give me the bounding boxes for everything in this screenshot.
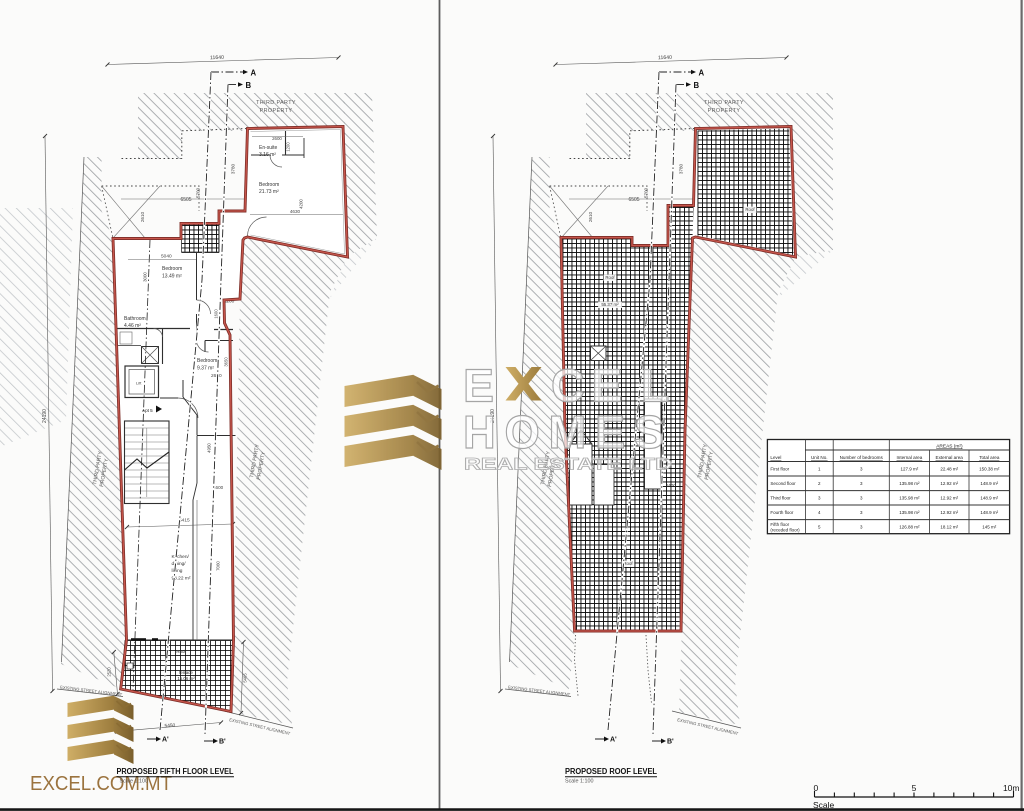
svg-text:4950: 4950 [207, 443, 212, 453]
svg-text:Fifth floor: Fifth floor [770, 522, 789, 527]
svg-text:5: 5 [912, 783, 917, 793]
svg-text:L: L [641, 360, 678, 412]
svg-text:Unit No.: Unit No. [811, 455, 828, 460]
svg-text:5450: 5450 [164, 723, 175, 730]
svg-text:12.92 m²: 12.92 m² [940, 496, 958, 501]
svg-text:3780: 3780 [231, 163, 236, 174]
svg-text:E: E [463, 360, 503, 412]
svg-text:Bathroom: Bathroom [124, 316, 146, 322]
svg-text:External area: External area [936, 455, 964, 460]
svg-text:PROPERTY: PROPERTY [708, 108, 741, 114]
svg-text:3.16 m²: 3.16 m² [259, 152, 276, 158]
svg-text:12.92 m²: 12.92 m² [940, 510, 958, 515]
svg-text:B': B' [219, 739, 226, 746]
svg-text:THIRD PARTY: THIRD PARTY [256, 100, 296, 106]
svg-text:dining/: dining/ [172, 561, 187, 567]
svg-text:3000: 3000 [143, 272, 148, 282]
svg-text:5700: 5700 [644, 187, 649, 198]
svg-text:HOMES: HOMES [463, 406, 673, 458]
svg-text:55.37 m²: 55.37 m² [601, 302, 619, 307]
svg-text:Internal area: Internal area [897, 455, 923, 460]
svg-text:4200: 4200 [299, 199, 304, 209]
svg-text:0: 0 [814, 783, 819, 793]
svg-text:Scale 1:100: Scale 1:100 [120, 779, 148, 785]
svg-text:Level: Level [770, 455, 781, 460]
svg-text:22.48 m²: 22.48 m² [940, 466, 958, 471]
svg-text:5700: 5700 [196, 187, 201, 198]
svg-text:living: living [172, 568, 183, 574]
svg-text:12.92 m²: 12.92 m² [940, 481, 958, 486]
svg-text:24190: 24190 [42, 409, 48, 423]
svg-text:Bedroom: Bedroom [259, 182, 279, 188]
svg-text:10m: 10m [1003, 783, 1020, 793]
svg-text:135.98 m²: 135.98 m² [899, 496, 920, 501]
svg-text:Scale: Scale [813, 800, 835, 810]
svg-text:11640: 11640 [658, 55, 672, 61]
svg-text:A': A' [162, 737, 169, 744]
svg-text:C: C [551, 360, 594, 412]
svg-text:E: E [592, 360, 632, 412]
svg-text:21.73 m²: 21.73 m² [259, 189, 279, 195]
svg-text:Bedroom: Bedroom [197, 358, 217, 364]
svg-text:EXISTING STREET ALIGNMENT: EXISTING STREET ALIGNMENT [60, 685, 123, 698]
svg-text:3650: 3650 [224, 357, 229, 367]
svg-text:Roof: Roof [745, 207, 755, 212]
svg-text:PROPOSED FIFTH FLOOR LEVEL: PROPOSED FIFTH FLOOR LEVEL [117, 766, 234, 776]
svg-text:1600: 1600 [214, 309, 219, 319]
svg-text:126.88 m²: 126.88 m² [899, 524, 920, 529]
svg-text:PROPOSED ROOF LEVEL: PROPOSED ROOF LEVEL [565, 766, 657, 776]
svg-text:EXISTING STREET ALIGNMENT: EXISTING STREET ALIGNMENT [508, 685, 571, 698]
svg-text:2610: 2610 [588, 211, 593, 222]
svg-text:Number of bedrooms: Number of bedrooms [840, 455, 884, 460]
svg-text:6505: 6505 [628, 197, 639, 203]
svg-text:Fourth floor: Fourth floor [770, 510, 794, 515]
svg-text:1600: 1600 [666, 483, 676, 488]
svg-text:150.38 m²: 150.38 m² [979, 466, 1000, 471]
svg-text:REAL ESTATE LTD: REAL ESTATE LTD [464, 455, 672, 474]
svg-text:First floor: First floor [770, 466, 789, 471]
svg-text:A': A' [610, 737, 617, 744]
svg-text:Lift: Lift [136, 381, 142, 386]
svg-text:Total area: Total area [979, 455, 1000, 460]
svg-text:145 m²: 145 m² [982, 524, 997, 529]
svg-text:(receded floor): (receded floor) [770, 527, 800, 532]
svg-text:B': B' [667, 739, 674, 746]
svg-text:135.98 m²: 135.98 m² [899, 510, 920, 515]
svg-text:3780: 3780 [679, 163, 684, 174]
svg-text:A: A [699, 69, 705, 78]
svg-text:Scale 1:100: Scale 1:100 [565, 779, 593, 785]
svg-text:148.9 m²: 148.9 m² [980, 496, 998, 501]
svg-text:135.98 m²: 135.98 m² [899, 481, 920, 486]
svg-text:THIRD PARTY: THIRD PARTY [704, 100, 744, 106]
svg-text:Second floor: Second floor [770, 481, 796, 486]
svg-text:2520: 2520 [107, 667, 112, 677]
svg-text:15.06 m²: 15.06 m² [177, 676, 195, 681]
svg-text:Roof: Roof [605, 275, 615, 280]
svg-text:Roof: Roof [623, 561, 633, 566]
svg-text:Third floor: Third floor [770, 496, 791, 501]
svg-text:2610: 2610 [140, 211, 145, 222]
svg-text:148.9 m²: 148.9 m² [980, 510, 998, 515]
svg-text:11640: 11640 [210, 55, 224, 61]
svg-text:148.9 m²: 148.9 m² [980, 481, 998, 486]
svg-text:13.49 m²: 13.49 m² [162, 274, 182, 280]
svg-text:127.9 m²: 127.9 m² [901, 466, 919, 471]
svg-text:18.12 m²: 18.12 m² [940, 524, 958, 529]
svg-text:A: A [251, 69, 257, 78]
svg-text:AREAS (m²): AREAS (m²) [936, 444, 963, 450]
svg-text:4.46 m²: 4.46 m² [124, 323, 141, 329]
svg-text:PROPERTY: PROPERTY [260, 108, 293, 114]
svg-text:Roof: Roof [176, 649, 186, 654]
svg-text:Kitchen/: Kitchen/ [172, 554, 190, 560]
svg-text:terrace: terrace [179, 670, 193, 675]
svg-text:5465: 5465 [243, 673, 248, 683]
svg-text:9.37 m²: 9.37 m² [197, 366, 214, 372]
svg-text:5040: 5040 [161, 254, 172, 260]
svg-text:7060: 7060 [216, 561, 221, 571]
svg-text:1200: 1200 [286, 142, 291, 152]
svg-text:B: B [694, 81, 700, 90]
svg-text:6505: 6505 [180, 197, 191, 203]
svg-text:Bedroom: Bedroom [162, 266, 182, 272]
svg-text:B: B [246, 81, 252, 90]
svg-text:En-suite: En-suite [259, 145, 278, 151]
